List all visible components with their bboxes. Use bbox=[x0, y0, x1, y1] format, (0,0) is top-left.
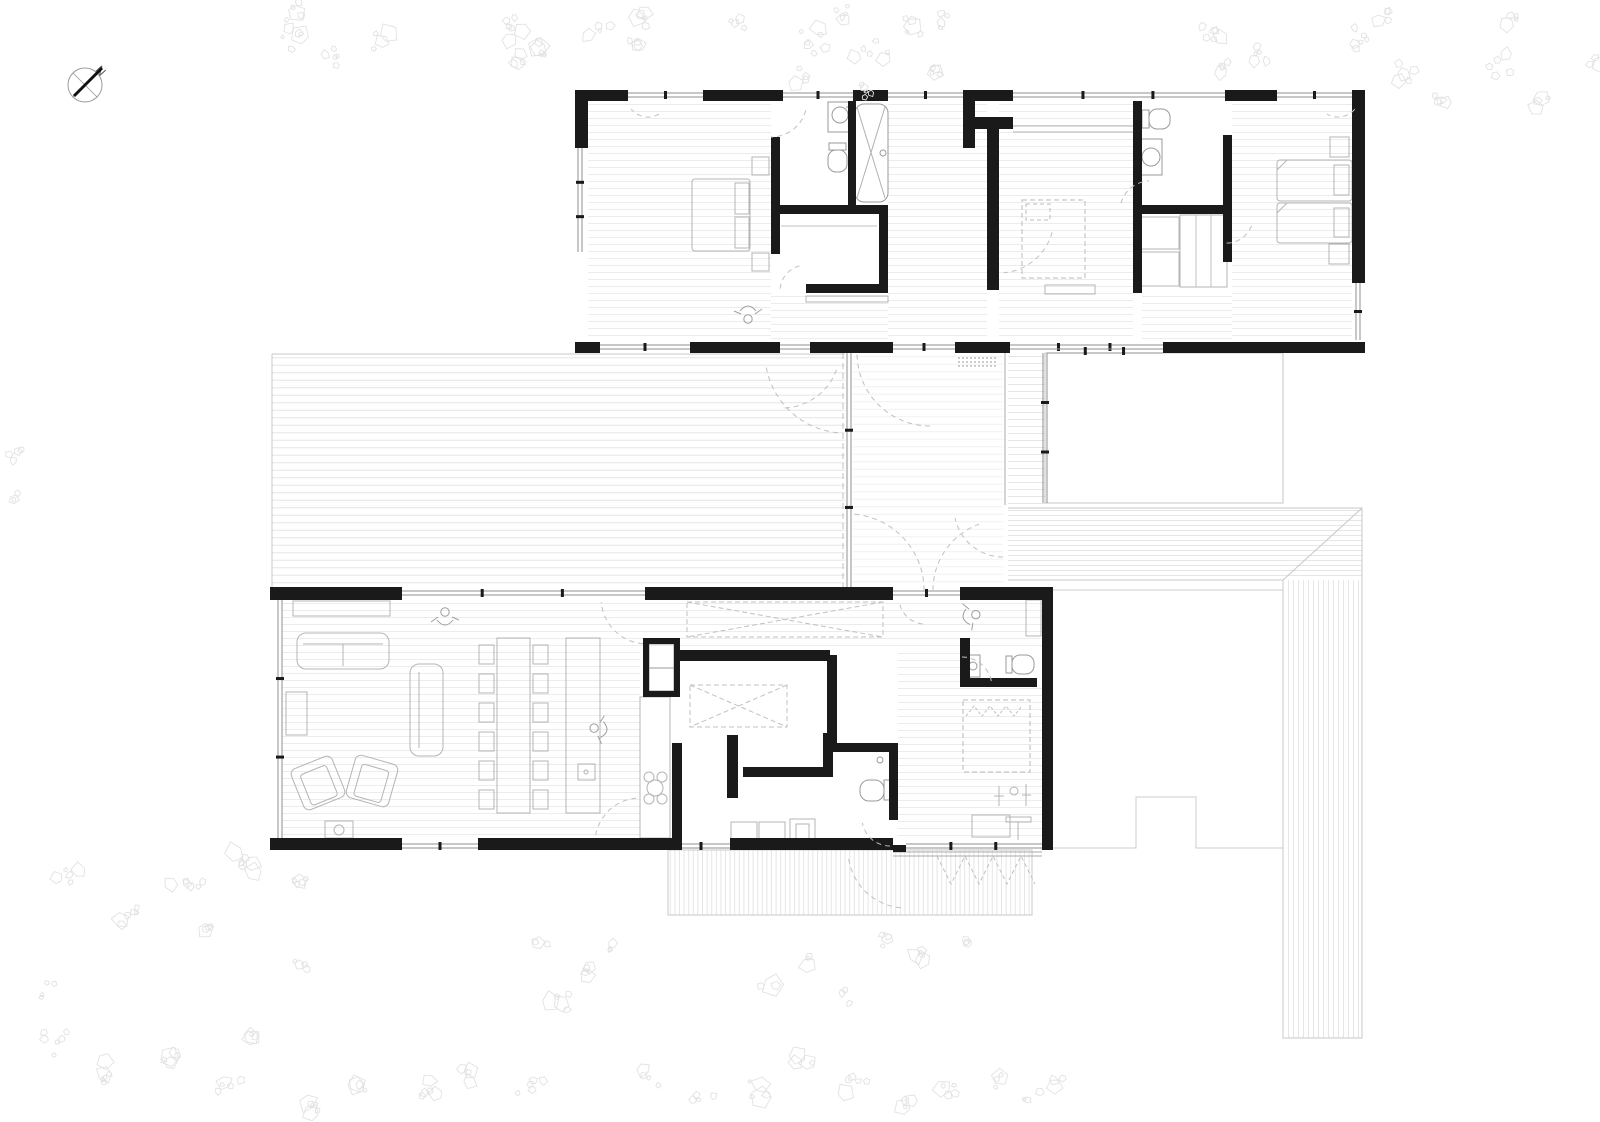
north-indicator: N bbox=[68, 63, 109, 102]
floor-plan-canvas: N bbox=[0, 0, 1600, 1122]
deck-hatching bbox=[272, 357, 1362, 1039]
drawing-sheet: N bbox=[0, 0, 1600, 1122]
structural-walls bbox=[270, 90, 1365, 852]
